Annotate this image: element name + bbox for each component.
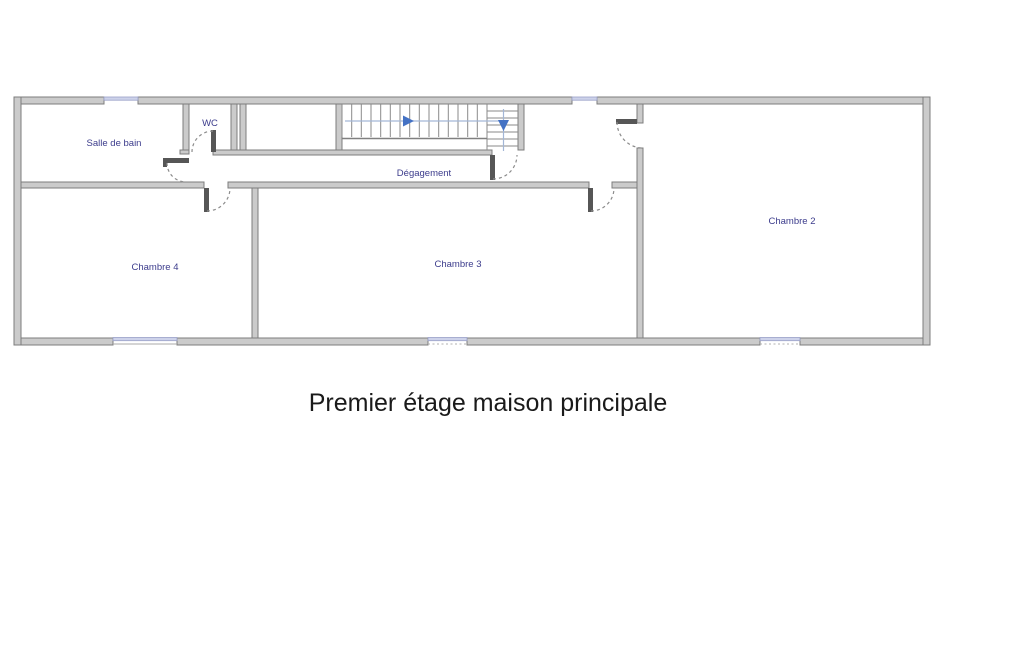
stair-treads-main-run xyxy=(342,104,487,150)
room-label-bedroom4: Chambre 4 xyxy=(132,262,179,273)
stairwell-door-leaf xyxy=(490,155,495,180)
floor-plan-canvas: Salle de bain WC Dégagement Chambre 4 Ch… xyxy=(0,0,1025,650)
window-bedroom3-bottom xyxy=(428,338,467,341)
stairwell-left-wall xyxy=(336,104,342,150)
divider-wall-left xyxy=(21,182,204,188)
stairwell-door-swing-arc xyxy=(493,155,517,179)
stairwell-strip-bottom-wall xyxy=(213,150,492,155)
window-bedroom2-bottom xyxy=(760,338,800,341)
plan-title: Premier étage maison principale xyxy=(309,389,668,417)
stairwell-right-wall xyxy=(518,104,524,150)
staircase xyxy=(342,104,518,151)
closet-left-wall xyxy=(240,104,246,150)
stair-direction-guide-line xyxy=(345,109,504,151)
windows xyxy=(104,97,800,344)
outer-wall-top-left xyxy=(14,97,104,104)
bathroom-right-wall xyxy=(183,104,189,150)
bathroom-door-swing-arc xyxy=(167,163,186,182)
window-bedroom4-bottom xyxy=(113,338,177,341)
bedroom2-wall-top xyxy=(637,104,643,123)
window-bathroom-top xyxy=(104,97,138,100)
wc-right-wall xyxy=(231,104,237,150)
bedroom2-door-leaf xyxy=(616,119,637,124)
bedroom2-door-swing-arc xyxy=(617,122,643,148)
room-label-wc: WC xyxy=(202,118,218,129)
outer-wall-left xyxy=(14,97,21,345)
outer-wall-bottom-3 xyxy=(467,338,760,345)
outer-wall-top-right xyxy=(597,97,930,104)
room-label-bathroom: Salle de bain xyxy=(87,138,142,149)
floor-plan-page: Salle de bain WC Dégagement Chambre 4 Ch… xyxy=(0,0,1025,650)
outer-wall-bottom-4 xyxy=(800,338,930,345)
room-labels: Salle de bain WC Dégagement Chambre 4 Ch… xyxy=(87,118,816,273)
room-label-bedroom3: Chambre 3 xyxy=(435,259,482,270)
bedroom3-door-swing-arc xyxy=(591,188,614,211)
bedroom4-door-swing-arc xyxy=(207,188,230,211)
room-label-bedroom2: Chambre 2 xyxy=(769,216,816,227)
outer-wall-top-middle xyxy=(138,97,572,104)
outer-wall-bottom-2 xyxy=(177,338,428,345)
room-label-hallway: Dégagement xyxy=(397,168,452,179)
window-hallway-top xyxy=(572,97,597,100)
divider-wall-middle xyxy=(228,182,589,188)
bedroom4-door-leaf xyxy=(204,188,209,212)
wc-door-leaf xyxy=(211,130,216,152)
outer-wall-right xyxy=(923,97,930,345)
outer-wall-bottom-1 xyxy=(14,338,113,345)
bedroom4-bedroom3-divider xyxy=(252,188,258,338)
bedroom3-door-leaf xyxy=(588,188,593,212)
bedroom2-wall-bottom xyxy=(637,148,643,338)
wc-door-swing-arc xyxy=(192,131,213,152)
bathroom-door-jamb xyxy=(180,150,189,154)
divider-wall-right xyxy=(612,182,637,188)
bathroom-door-leaf-cap xyxy=(163,158,167,167)
stair-up-arrow-icon xyxy=(403,116,414,127)
